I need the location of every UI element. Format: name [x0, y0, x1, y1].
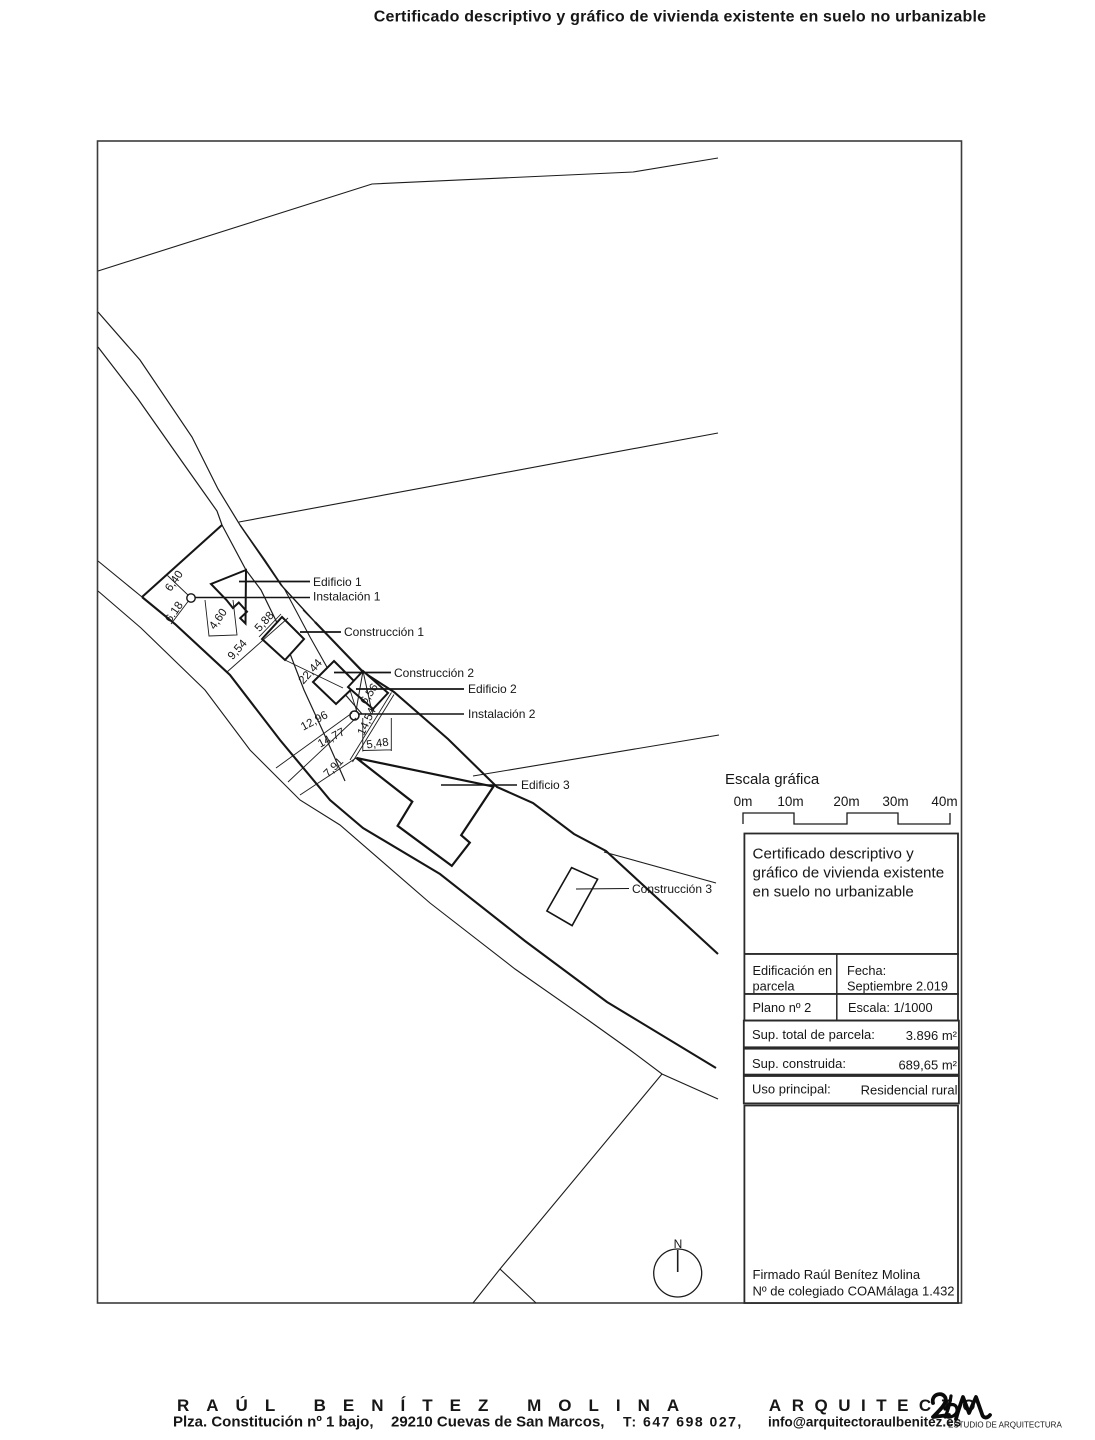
svg-text:Sup. total de parcela:: Sup. total de parcela: — [752, 1027, 875, 1042]
svg-text:Residencial rural: Residencial rural — [861, 1083, 958, 1098]
svg-text:Edificio 3: Edificio 3 — [521, 778, 570, 792]
svg-text:10m: 10m — [777, 794, 803, 809]
svg-text:ESTUDIO DE ARQUITECTURA: ESTUDIO DE ARQUITECTURA — [948, 1421, 1062, 1430]
svg-text:30m: 30m — [882, 794, 908, 809]
svg-text:T: 647 698 027,: T: 647 698 027, — [623, 1414, 743, 1430]
svg-text:gráfico de vivienda existente: gráfico de vivienda existente — [753, 865, 945, 882]
svg-text:Certificado descriptivo y: Certificado descriptivo y — [753, 846, 915, 863]
svg-text:Edificio 2: Edificio 2 — [468, 682, 517, 696]
svg-text:Certificado descriptivo y gráf: Certificado descriptivo y gráfico de viv… — [374, 9, 986, 26]
svg-text:5,48: 5,48 — [366, 737, 390, 752]
svg-text:Edificio 1: Edificio 1 — [313, 575, 362, 589]
svg-text:Construcción 2: Construcción 2 — [394, 666, 474, 680]
svg-text:N: N — [674, 1237, 683, 1251]
svg-text:Escala gráfica: Escala gráfica — [725, 771, 820, 788]
svg-text:Construcción 3: Construcción 3 — [632, 882, 712, 896]
svg-text:Instalación 1: Instalación 1 — [313, 590, 381, 604]
svg-text:en suelo no urbanizable: en suelo no urbanizable — [753, 884, 914, 901]
svg-text:689,65 m²: 689,65 m² — [898, 1058, 957, 1073]
svg-text:0m: 0m — [734, 794, 753, 809]
svg-text:Septiembre 2.019: Septiembre 2.019 — [847, 979, 948, 994]
svg-text:Firmado Raúl Benítez Molina: Firmado Raúl Benítez Molina — [753, 1267, 921, 1282]
svg-text:Nº de colegiado COAMálaga 1.43: Nº de colegiado COAMálaga 1.432 — [753, 1284, 955, 1299]
svg-text:Instalación 2: Instalación 2 — [468, 707, 536, 721]
svg-text:parcela: parcela — [753, 979, 796, 994]
svg-text:29210 Cuevas de San Marcos,: 29210 Cuevas de San Marcos, — [391, 1414, 604, 1431]
svg-text:RAÚL BENÍTEZ MOLINA: RAÚL BENÍTEZ MOLINA — [177, 1396, 696, 1415]
svg-text:40m: 40m — [931, 794, 957, 809]
svg-text:3.896 m²: 3.896 m² — [906, 1028, 958, 1043]
svg-text:20m: 20m — [833, 794, 859, 809]
svg-text:Sup. construida:: Sup. construida: — [752, 1056, 846, 1071]
svg-text:Edificación en: Edificación en — [753, 963, 833, 978]
svg-text:9,54: 9,54 — [226, 637, 250, 662]
svg-text:4,60: 4,60 — [207, 607, 230, 632]
svg-text:14,77: 14,77 — [316, 726, 347, 750]
svg-text:Uso principal:: Uso principal: — [752, 1082, 831, 1097]
svg-text:Fecha:: Fecha: — [847, 963, 886, 978]
svg-text:Plza. Constitución nº 1 bajo,: Plza. Constitución nº 1 bajo, — [173, 1414, 374, 1431]
svg-text:Escala: 1/1000: Escala: 1/1000 — [848, 1000, 933, 1015]
svg-text:6.18: 6.18 — [163, 600, 186, 625]
svg-text:Construcción 1: Construcción 1 — [344, 625, 424, 639]
svg-text:Plano nº 2: Plano nº 2 — [753, 1000, 812, 1015]
